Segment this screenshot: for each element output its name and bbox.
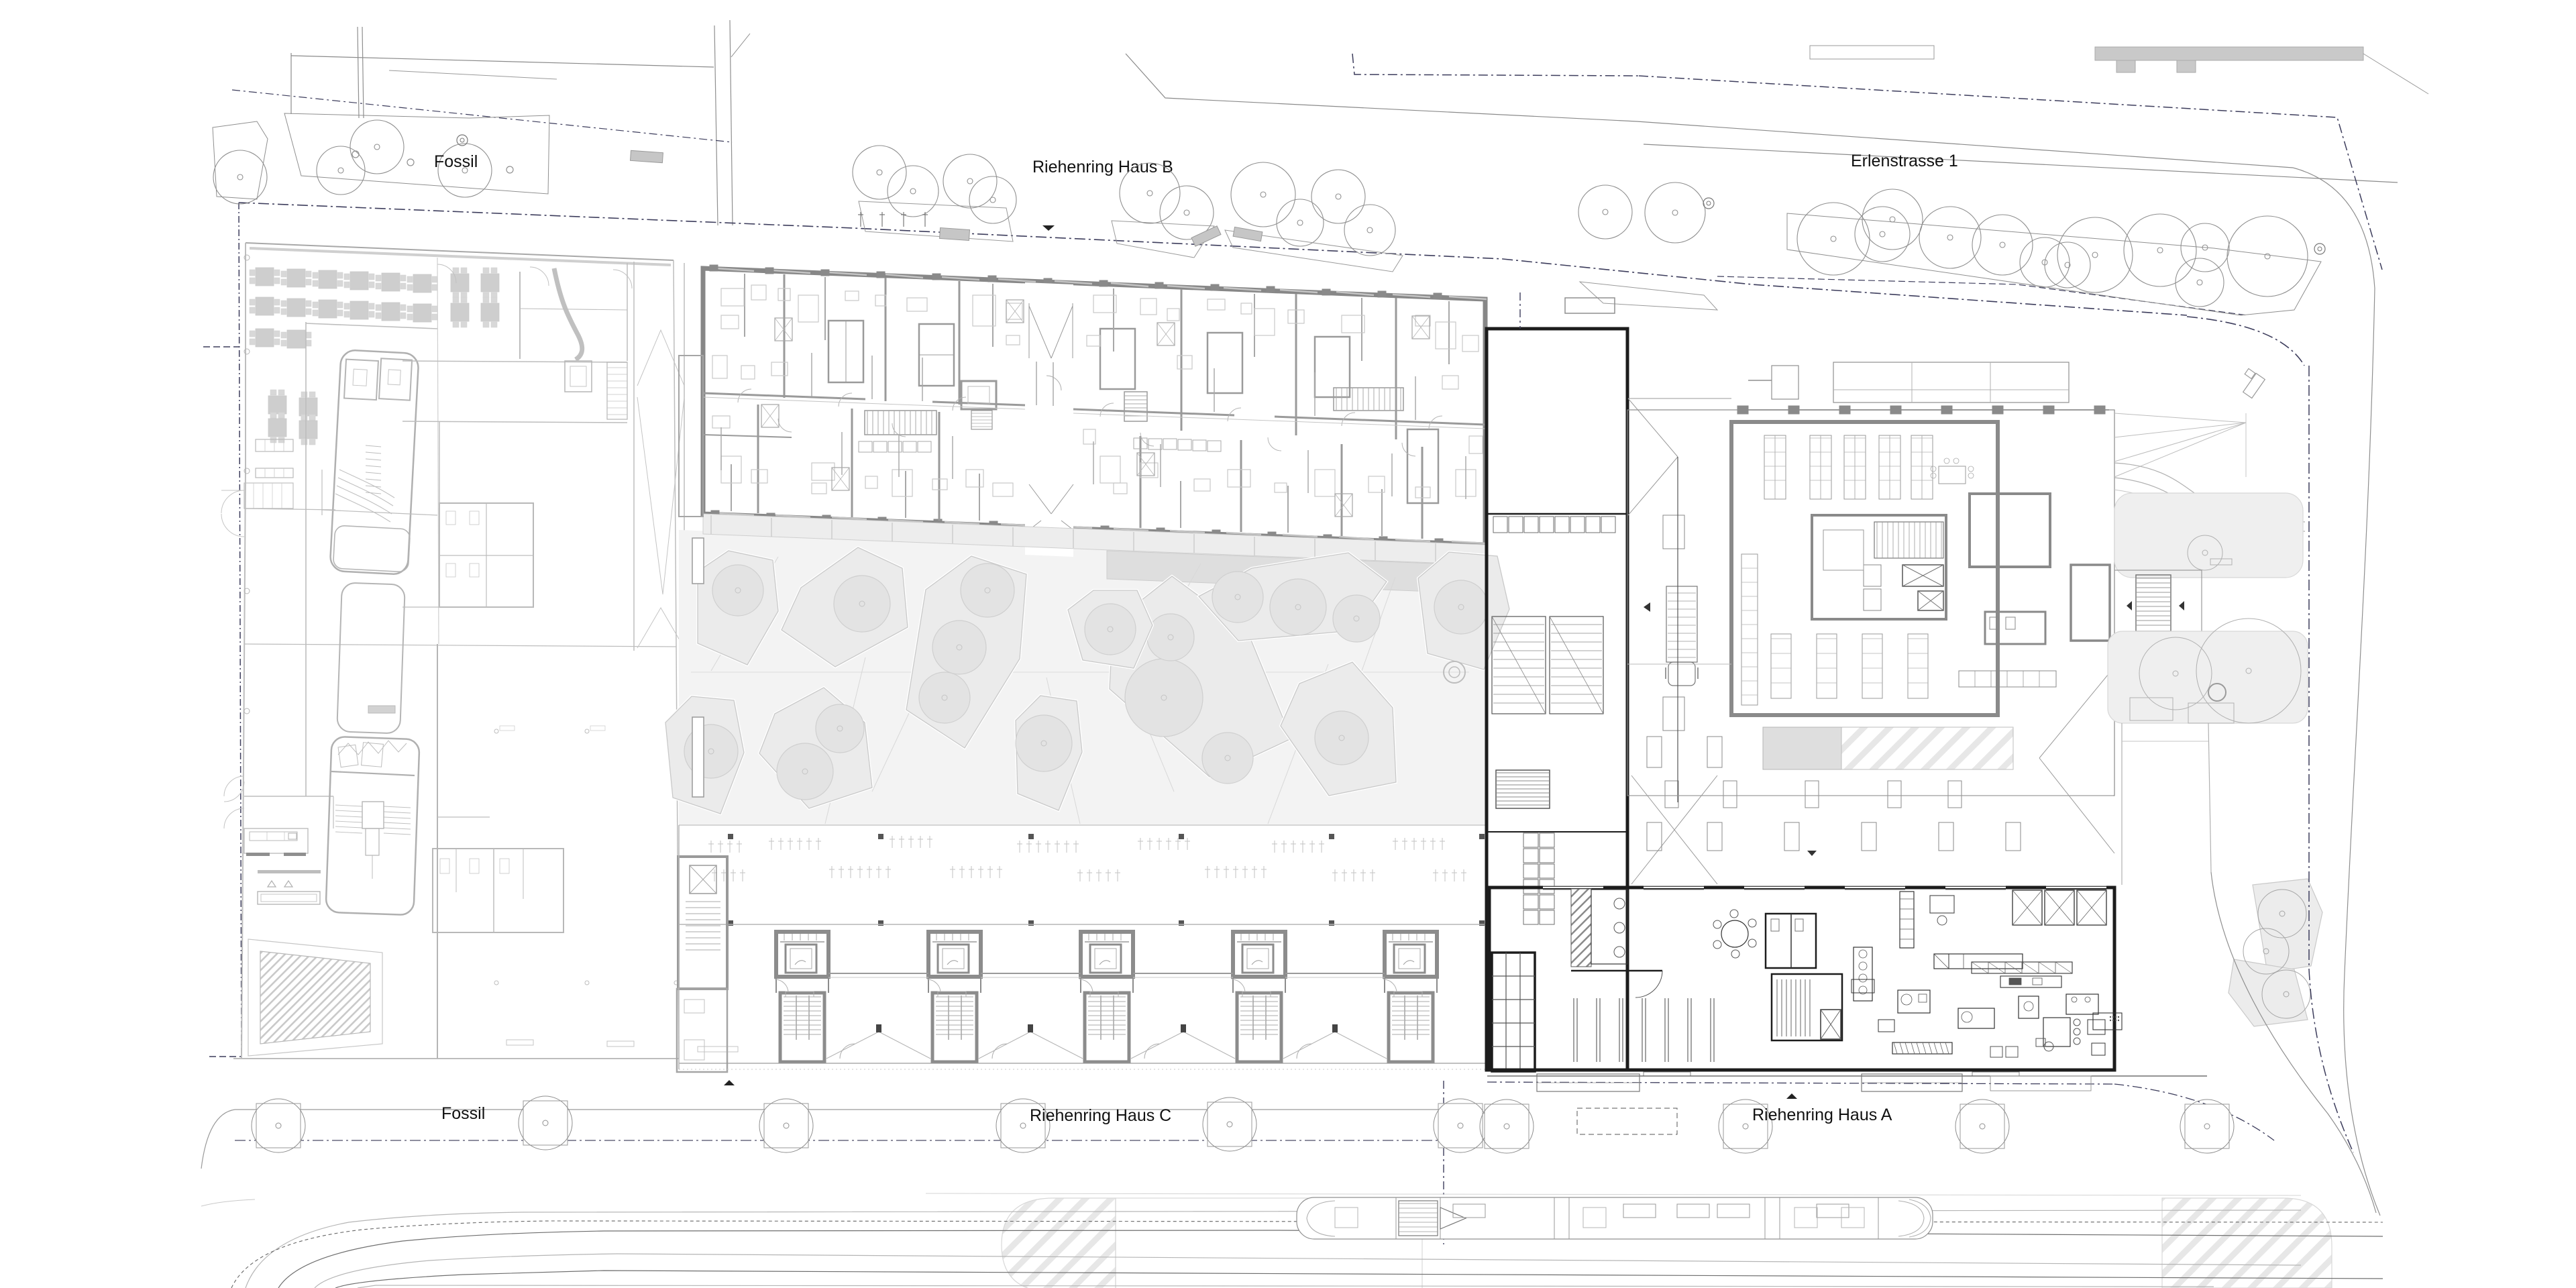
svg-text:Fossil: Fossil xyxy=(441,1104,485,1123)
svg-text:Riehenring Haus B: Riehenring Haus B xyxy=(1032,158,1173,176)
svg-text:Erlenstrasse 1: Erlenstrasse 1 xyxy=(1851,152,1958,170)
svg-text:Fossil: Fossil xyxy=(434,152,478,171)
svg-text:Riehenring Haus A: Riehenring Haus A xyxy=(1752,1106,1892,1124)
svg-text:Riehenring Haus C: Riehenring Haus C xyxy=(1030,1106,1171,1125)
